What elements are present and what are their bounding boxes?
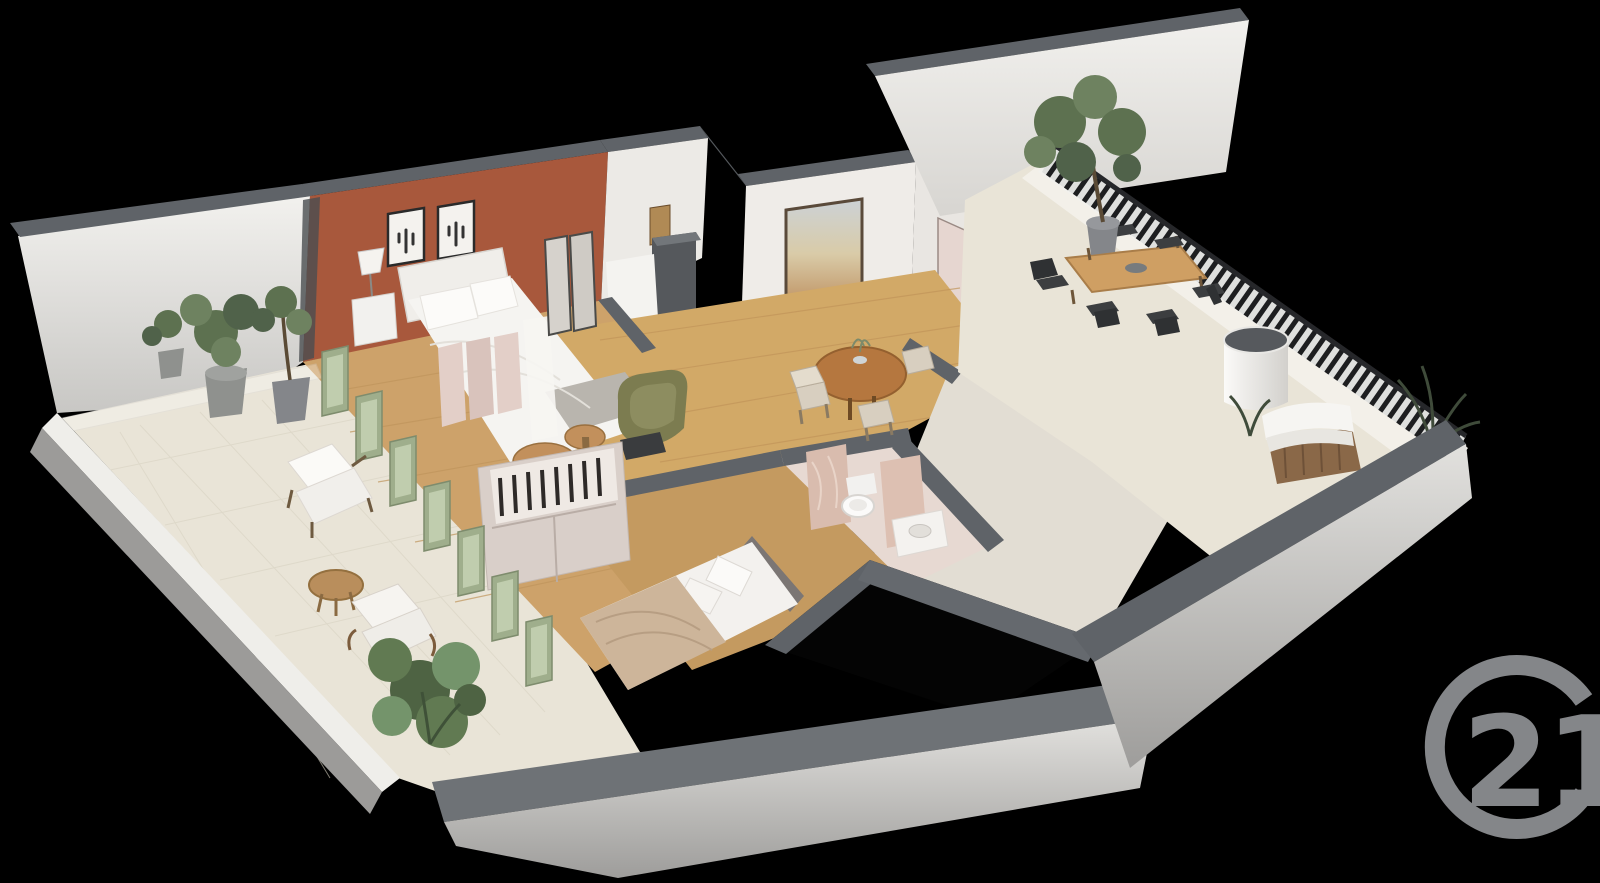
olive-armchair — [618, 370, 688, 445]
logo-21-text: 21 — [1462, 689, 1600, 836]
cactus-print-frame — [438, 201, 474, 259]
cylindrical-planter — [1224, 327, 1288, 410]
floor-plan-render: 21 — [0, 0, 1600, 883]
cactus-print-frame — [388, 208, 424, 266]
hot-tub — [1262, 403, 1361, 484]
floor-plan-scene: 21 — [0, 0, 1600, 883]
lamp — [358, 248, 384, 275]
